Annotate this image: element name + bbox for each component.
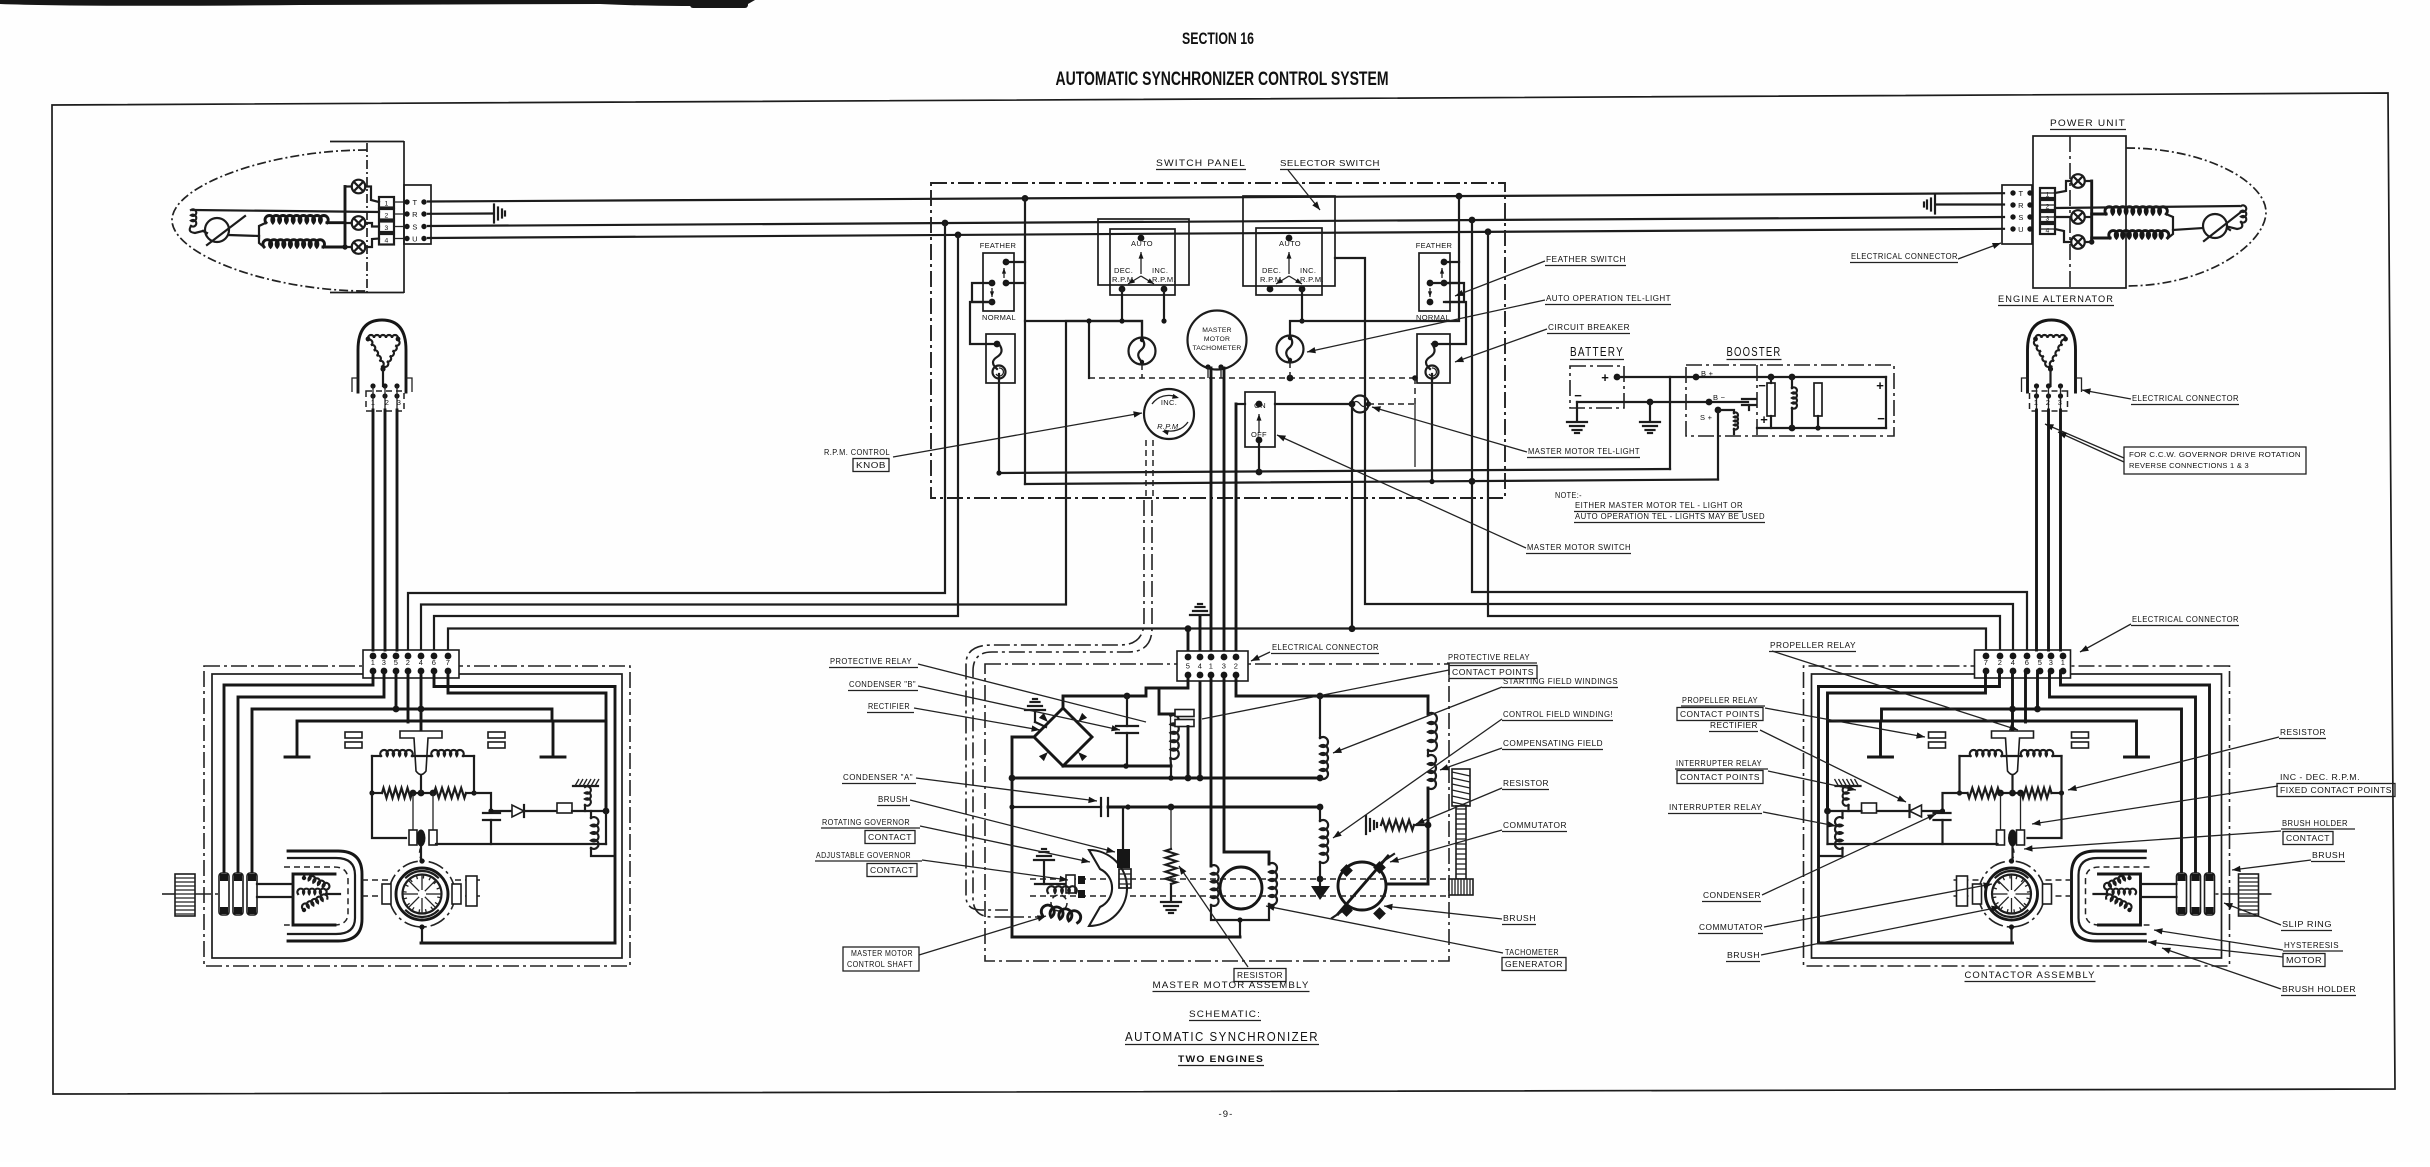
svg-text:MOTOR: MOTOR — [2286, 956, 2322, 965]
svg-text:2: 2 — [1998, 658, 2002, 667]
svg-text:2: 2 — [385, 213, 389, 220]
svg-text:−: − — [1877, 411, 1885, 426]
svg-text:R.P.M.: R.P.M. — [1260, 275, 1284, 284]
svg-text:7: 7 — [446, 658, 450, 667]
svg-text:ROTATING GOVERNOR: ROTATING GOVERNOR — [822, 818, 910, 827]
svg-text:BRUSH HOLDER: BRUSH HOLDER — [2282, 985, 2356, 994]
svg-text:CONTROL SHAFT: CONTROL SHAFT — [847, 960, 913, 969]
svg-text:AUTOMATIC SYNCHRONIZER: AUTOMATIC SYNCHRONIZER — [1125, 1030, 1319, 1044]
svg-text:PROPELLER RELAY: PROPELLER RELAY — [1682, 696, 1758, 705]
svg-text:INTERRUPTER RELAY: INTERRUPTER RELAY — [1669, 803, 1762, 812]
svg-text:R: R — [2018, 201, 2024, 210]
svg-text:RESISTOR: RESISTOR — [1237, 971, 1283, 980]
svg-text:+: + — [1601, 370, 1609, 385]
svg-text:MASTER MOTOR ASSEMBLY: MASTER MOTOR ASSEMBLY — [1153, 980, 1310, 991]
svg-text:3: 3 — [2058, 398, 2062, 407]
svg-text:STARTING FIELD WINDINGS: STARTING FIELD WINDINGS — [1503, 677, 1618, 686]
svg-text:CONTACT POINTS: CONTACT POINTS — [1452, 668, 1534, 677]
svg-text:CONTACT POINTS: CONTACT POINTS — [1680, 710, 1760, 719]
svg-text:BRUSH HOLDER: BRUSH HOLDER — [2282, 819, 2348, 828]
svg-text:R.P.M.: R.P.M. — [1152, 275, 1176, 284]
svg-text:NORMAL: NORMAL — [982, 313, 1016, 322]
svg-text:DEC.: DEC. — [1114, 266, 1133, 275]
svg-text:5: 5 — [2038, 658, 2042, 667]
svg-text:REVERSE CONNECTIONS 1 & 3: REVERSE CONNECTIONS 1 & 3 — [2129, 461, 2249, 470]
svg-text:CIRCUIT BREAKER: CIRCUIT BREAKER — [1548, 323, 1630, 332]
svg-text:CONTACT: CONTACT — [2286, 834, 2330, 843]
svg-text:MASTER MOTOR TEL-LIGHT: MASTER MOTOR TEL-LIGHT — [1528, 447, 1640, 456]
svg-text:CONTACT POINTS: CONTACT POINTS — [1680, 773, 1760, 782]
svg-text:GENERATOR: GENERATOR — [1505, 960, 1563, 969]
svg-text:−: − — [1574, 388, 1582, 403]
svg-text:BOOSTER: BOOSTER — [1727, 345, 1782, 359]
svg-text:BATTERY: BATTERY — [1570, 345, 1624, 359]
svg-text:SELECTOR SWITCH: SELECTOR SWITCH — [1280, 159, 1380, 168]
svg-text:INTERRUPTER RELAY: INTERRUPTER RELAY — [1676, 759, 1762, 768]
svg-text:SECTION 16: SECTION 16 — [1182, 29, 1254, 48]
svg-text:SWITCH PANEL: SWITCH PANEL — [1156, 158, 1246, 169]
svg-text:RESISTOR: RESISTOR — [2280, 728, 2326, 737]
svg-text:MASTER MOTOR: MASTER MOTOR — [851, 949, 913, 958]
svg-text:ELECTRICAL CONNECTOR: ELECTRICAL CONNECTOR — [2132, 394, 2239, 403]
svg-text:MOTOR: MOTOR — [1204, 336, 1230, 343]
svg-text:B +: B + — [1701, 369, 1714, 378]
svg-text:FEATHER: FEATHER — [980, 241, 1017, 250]
svg-text:S: S — [2018, 213, 2023, 222]
svg-text:1: 1 — [371, 398, 375, 407]
svg-text:6: 6 — [432, 658, 436, 667]
svg-text:TACHOMETER: TACHOMETER — [1505, 948, 1559, 957]
svg-text:T: T — [2019, 189, 2024, 198]
svg-text:1: 1 — [2034, 398, 2038, 407]
svg-text:T: T — [413, 198, 418, 207]
svg-text:3: 3 — [382, 658, 386, 667]
svg-text:S +: S + — [1700, 413, 1713, 422]
svg-text:KNOB: KNOB — [856, 461, 886, 470]
svg-text:RESISTOR: RESISTOR — [1503, 779, 1549, 788]
svg-text:CONTACTOR ASSEMBLY: CONTACTOR ASSEMBLY — [1965, 970, 2096, 981]
svg-text:RECTIFIER: RECTIFIER — [1710, 721, 1758, 730]
svg-text:ENGINE ALTERNATOR: ENGINE ALTERNATOR — [1998, 294, 2114, 305]
svg-text:ELECTRICAL CONNECTOR: ELECTRICAL CONNECTOR — [1851, 252, 1958, 261]
svg-text:2: 2 — [1234, 662, 1238, 671]
svg-text:6: 6 — [2025, 658, 2029, 667]
svg-text:1: 1 — [371, 658, 375, 667]
svg-text:4: 4 — [1198, 662, 1202, 671]
svg-text:PROTECTIVE RELAY: PROTECTIVE RELAY — [1448, 653, 1530, 662]
svg-text:CONDENSER: CONDENSER — [1703, 891, 1761, 900]
svg-text:R.P.M.: R.P.M. — [1300, 275, 1324, 284]
svg-text:TWO ENGINES: TWO ENGINES — [1178, 1054, 1264, 1065]
svg-text:3: 3 — [1222, 662, 1226, 671]
svg-text:3: 3 — [2049, 658, 2053, 667]
svg-text:DEC.: DEC. — [1262, 266, 1281, 275]
svg-text:BRUSH: BRUSH — [2312, 851, 2345, 860]
svg-text:INC.: INC. — [1300, 266, 1316, 275]
svg-text:R.P.M.: R.P.M. — [1112, 275, 1136, 284]
svg-text:COMMUTATOR: COMMUTATOR — [1503, 821, 1567, 830]
svg-text:COMMUTATOR: COMMUTATOR — [1699, 923, 1763, 932]
svg-text:5: 5 — [394, 658, 398, 667]
svg-text:-9-: -9- — [1219, 1109, 1234, 1120]
svg-text:AUTO: AUTO — [1279, 239, 1301, 248]
svg-text:2: 2 — [385, 398, 389, 407]
svg-text:EITHER MASTER MOTOR TEL - LIG: EITHER MASTER MOTOR TEL - LIGHT OR — [1575, 501, 1743, 510]
svg-text:R.P.M. CONTROL: R.P.M. CONTROL — [824, 448, 890, 457]
svg-text:COMPENSATING FIELD: COMPENSATING FIELD — [1503, 739, 1603, 748]
svg-text:7: 7 — [1984, 658, 1988, 667]
svg-text:3: 3 — [397, 398, 401, 407]
svg-text:HYSTERESIS: HYSTERESIS — [2284, 941, 2339, 950]
svg-text:−: − — [1758, 378, 1766, 393]
svg-text:CONTROL FIELD WINDING!: CONTROL FIELD WINDING! — [1503, 710, 1613, 719]
svg-text:B −: B − — [1713, 393, 1726, 402]
svg-text:INC - DEC. R.P.M.: INC - DEC. R.P.M. — [2280, 773, 2360, 782]
svg-text:R: R — [412, 210, 418, 219]
svg-text:5: 5 — [1186, 662, 1190, 671]
svg-text:FEATHER SWITCH: FEATHER SWITCH — [1546, 255, 1626, 264]
svg-text:1: 1 — [385, 201, 389, 208]
svg-text:4: 4 — [419, 658, 423, 667]
svg-text:+: + — [1876, 378, 1884, 393]
svg-text:MASTER: MASTER — [1202, 327, 1232, 334]
svg-text:INC.: INC. — [1152, 266, 1168, 275]
svg-text:INC.: INC. — [1161, 398, 1177, 407]
svg-text:ELECTRICAL CONNECTOR: ELECTRICAL CONNECTOR — [2132, 615, 2239, 624]
svg-text:U: U — [2018, 225, 2024, 234]
svg-text:FOR C.C.W. GOVERNOR DRIVE RO: FOR C.C.W. GOVERNOR DRIVE ROTATION — [2129, 450, 2301, 459]
svg-text:ADJUSTABLE GOVERNOR: ADJUSTABLE GOVERNOR — [816, 851, 911, 860]
svg-text:SLIP RING: SLIP RING — [2282, 920, 2332, 929]
svg-text:4: 4 — [385, 238, 389, 245]
svg-text:CONTACT: CONTACT — [868, 833, 912, 842]
svg-text:3: 3 — [385, 225, 389, 232]
svg-text:FIXED CONTACT POINTS: FIXED CONTACT POINTS — [2280, 786, 2392, 795]
svg-text:AUTOMATIC SYNCHRONIZER CONTR: AUTOMATIC SYNCHRONIZER CONTROL SYSTEM — [1056, 69, 1389, 90]
svg-text:2: 2 — [2046, 398, 2050, 407]
svg-text:CONDENSER "B": CONDENSER "B" — [849, 680, 916, 689]
svg-text:ELECTRICAL CONNECTOR: ELECTRICAL CONNECTOR — [1272, 643, 1379, 652]
svg-text:AUTO: AUTO — [1131, 239, 1153, 248]
svg-text:BRUSH: BRUSH — [1727, 951, 1760, 960]
svg-text:S: S — [412, 223, 417, 232]
svg-text:CONTACT: CONTACT — [870, 866, 914, 875]
svg-text:4: 4 — [2011, 658, 2015, 667]
svg-text:NOTE:-: NOTE:- — [1555, 491, 1582, 500]
svg-text:POWER UNIT: POWER UNIT — [2050, 118, 2126, 129]
svg-text:U: U — [412, 235, 418, 244]
svg-text:AUTO OPERATION TEL-LIGHT: AUTO OPERATION TEL-LIGHT — [1546, 294, 1671, 303]
svg-text:BRUSH: BRUSH — [1503, 914, 1536, 923]
svg-text:PROPELLER RELAY: PROPELLER RELAY — [1770, 641, 1856, 650]
svg-text:SCHEMATIC:: SCHEMATIC: — [1189, 1009, 1261, 1020]
svg-text:FEATHER: FEATHER — [1416, 241, 1453, 250]
svg-text:AUTO OPERATION TEL - LIGHTS: AUTO OPERATION TEL - LIGHTS MAY BE USED — [1575, 512, 1765, 521]
svg-text:R.P.M.: R.P.M. — [1157, 422, 1181, 431]
svg-text:RECTIFIER: RECTIFIER — [868, 702, 910, 711]
svg-text:2: 2 — [406, 658, 410, 667]
svg-text:NORMAL: NORMAL — [1416, 313, 1450, 322]
svg-text:PROTECTIVE RELAY: PROTECTIVE RELAY — [830, 657, 912, 666]
svg-text:CONDENSER "A": CONDENSER "A" — [843, 773, 913, 782]
svg-text:1: 1 — [1209, 662, 1213, 671]
svg-text:BRUSH: BRUSH — [878, 795, 908, 804]
svg-text:TACHOMETER: TACHOMETER — [1192, 345, 1241, 352]
svg-text:1: 1 — [2061, 658, 2065, 667]
svg-text:+: + — [1760, 412, 1768, 427]
svg-text:MASTER MOTOR SWITCH: MASTER MOTOR SWITCH — [1527, 543, 1631, 552]
